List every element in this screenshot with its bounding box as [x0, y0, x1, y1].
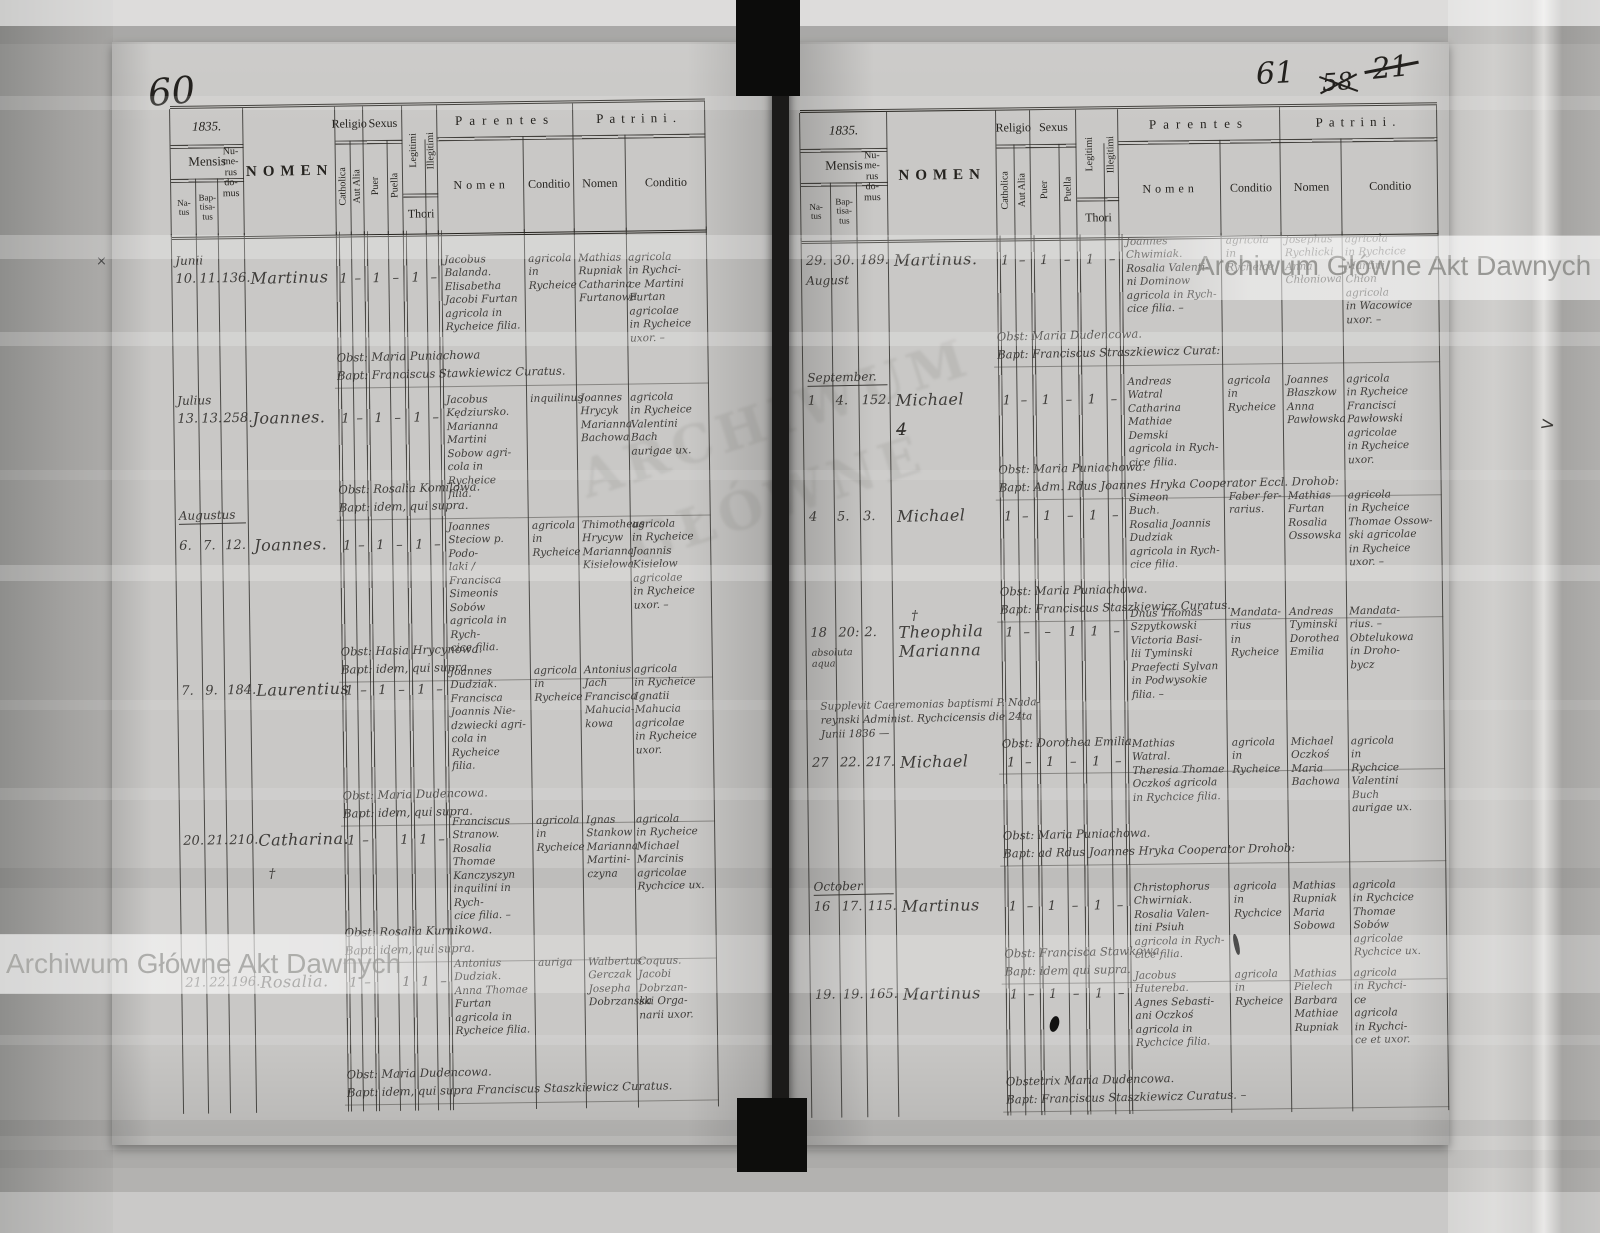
section-parentes: Parentes [437, 105, 573, 135]
record-right-1-flag-0: 1 [1001, 253, 1010, 268]
record-left-2-natus-day: 13. [177, 411, 199, 426]
col-natus: Na- tus [801, 185, 832, 239]
record-right-1-flag-4: 1 [1086, 252, 1095, 267]
record-left-6-parents-names: Antonius Dudziak. Anna Thomae Furtan agr… [454, 956, 536, 1038]
record-left-6-flag-3: 1 [402, 975, 411, 990]
section-patrini: Patrini. [1280, 107, 1438, 137]
record-left-3-month: Augustus [179, 507, 246, 525]
record-right-3-godparents-names: Mathias Furtan Rosalia Ossowska [1288, 489, 1346, 544]
record-right-6-baptisatus-day: 17. [842, 899, 866, 914]
table-header-right: 1835. Mensis Na- tus Bap- tisa- tus Nu- … [800, 102, 1439, 244]
record-right-2-flag-1: – [1021, 393, 1028, 408]
record-right-6-flag-1: – [1027, 899, 1034, 914]
record-right-2-parents-condition: agricola in Rycheice [1227, 374, 1283, 415]
record-right-5-godparents-condition: agricola in Rychcice Valentini Buch auri… [1351, 733, 1444, 816]
record-left-2-month: Julius [177, 392, 244, 408]
record-left-5-flag-5: – [438, 832, 445, 847]
record-left-3-flag-3: – [396, 538, 403, 553]
record-left-6-flag-5: – [440, 974, 447, 989]
record-right-1-baptisatus-day: 30. [834, 253, 858, 268]
record-right-7-natus-day: 19. [815, 987, 841, 1003]
record-right-1-flag-3: – [1064, 253, 1071, 268]
binding-clamp-top [736, 0, 800, 96]
record-right-4-godparents-names: Andreas Tyminski Dorothea Emilia [1289, 605, 1347, 660]
record-right-1-month: August [806, 272, 886, 288]
col-patrini-conditio: Conditio [625, 136, 707, 229]
record-right-4-dates-note: absoluta aqua [812, 646, 889, 670]
col-puer: Puer [1030, 144, 1060, 236]
record-left-4-baptisatus-day: 9. [205, 683, 225, 698]
record-left-1-flag-4: 1 [411, 270, 420, 285]
record-right-4-child-name: Theophila Marianna [899, 621, 1003, 661]
col-numerus-domus: Nu- me- rus do- mus [217, 112, 244, 234]
record-left-1-house-number: 136. [221, 271, 245, 287]
record-right-3-baptisatus-day: 5. [837, 509, 861, 524]
record-left-4-flag-3: – [398, 683, 405, 698]
record-right-1-natus-day: 29. [806, 253, 832, 269]
record-left-3-godparents-names: Thimotheus Hrycyw Marianna Kisielowa [581, 518, 630, 573]
record-left-4-flag-2: 1 [378, 683, 387, 698]
col-patrini-nomen: Nomen [573, 137, 626, 230]
record-left-4-house-number: 184. [227, 683, 251, 699]
record-right-6-child-name: Martinus [902, 895, 1006, 916]
record-right-7-godparents-condition: agricola in Rychci- ce agricola in Rychc… [1354, 965, 1447, 1048]
record-right-2-house-number: 152. [861, 393, 889, 409]
page-number-right: 61 [1255, 55, 1295, 92]
col-legitimi: Legitimi [1077, 113, 1105, 195]
record-left-4-godparents-condition: agricola in Rycheice Ignatii Mahucia agr… [634, 662, 713, 758]
record-right-3-child-name: Michael [897, 505, 1001, 526]
record-right-7-flag-1: – [1028, 987, 1035, 1002]
record-left-1-baptisatus-day: 11. [200, 271, 220, 286]
record-left-4-natus-day: 7. [181, 683, 203, 698]
col-thori: Thori [403, 195, 438, 231]
col-sexus: Sexus [363, 108, 402, 139]
record-right-5-flag-5: – [1115, 754, 1122, 769]
record-right-5-flag-0: 1 [1007, 755, 1016, 770]
record-right-3-flag-3: – [1067, 509, 1074, 524]
record-left-2-flag-0: 1 [342, 411, 351, 426]
record-left-4-flag-1: – [361, 683, 368, 698]
record-left-1-flag-0: 1 [340, 271, 349, 286]
record-left-1-godparents-names: Mathias Rupniak Catharina Furtanowa [578, 251, 627, 306]
col-numerus-domus: Nu- me- rus do- mus [856, 116, 888, 238]
record-left-1-child-name: Martinus [250, 267, 337, 288]
record-right-4-natus-day: 18 [810, 625, 836, 641]
col-baptisatus: Bap- tisa- tus [196, 180, 219, 234]
record-left-6-flag-0: 1 [350, 975, 359, 990]
record-right-7-flag-2: 1 [1048, 987, 1057, 1002]
record-right-7-flag-5: – [1118, 986, 1125, 1001]
record-left-1-flag-1: – [355, 271, 362, 286]
record-right-4-flag-1: – [1024, 625, 1031, 640]
record-right-7-godparents-names: Mathias Pielech Barbara Mathiae Rupniak [1293, 967, 1352, 1035]
scan-background-left [0, 0, 113, 1233]
record-right-5-baptisatus-day: 22. [840, 755, 864, 770]
col-parentes-conditio: Conditio [524, 137, 575, 230]
record-right-2-baptisatus-day: 4. [836, 393, 860, 408]
record-right-2-flag-3: – [1065, 393, 1072, 408]
record-right-5-flag-1: – [1025, 755, 1032, 770]
record-left-3-natus-day: 6. [179, 538, 201, 553]
record-left-2-godparents-names: Joannes Hrycyk Marianna Bachowa [580, 391, 629, 446]
record-left-1-parents-condition: agricola in Rycheice [528, 252, 575, 293]
record-right-4-godparents-condition: Mandata- rius. – Obtelukowa in Droho- by… [1349, 603, 1442, 672]
record-left-5-death-cross: † [269, 867, 276, 882]
record-right-5-godparents-names: Michael Oczkoś Maria Bachowa [1291, 735, 1349, 790]
record-left-4-flag-5: – [436, 682, 443, 697]
header-row-rule [1078, 197, 1119, 202]
record-right-3-godparents-condition: agricola in Rycheice Thomae Ossow- ski a… [1348, 487, 1441, 570]
record-right-4-flag-2: – [1044, 625, 1051, 640]
crossed-numeral-mark: 4̶ [896, 420, 907, 440]
record-left-3-flag-1: – [358, 538, 365, 553]
record-right-1-flag-5: – [1109, 252, 1116, 267]
record-left-1-midwife-baptizer-note: Obst: Maria Puniachowa Bapt: Franciscus … [337, 341, 707, 385]
scan-streak [0, 1192, 1600, 1233]
record-right-5-midwife-baptizer-note: Obst: Maria Puniachowa. Bapt: ad Rdus Jo… [1003, 818, 1443, 863]
record-right-6-month: October [813, 878, 893, 896]
record-left-1-flag-2: 1 [372, 271, 381, 286]
record-right-4-house-number: 2. [864, 625, 892, 641]
record-left-3-parents-condition: agricola in Rycheice [532, 519, 579, 560]
scan-background-right [1448, 0, 1600, 1233]
record-right-4-flag-5: – [1113, 624, 1120, 639]
record-left-5-flag-3: 1 [400, 833, 409, 848]
records-area-right: August29.30.189.Martinus.1–1–1–Joannes C… [802, 230, 1450, 1118]
record-left-3-baptisatus-day: 7. [203, 538, 223, 553]
record-left-3-parents-names: Joannes Steciow p. Podo- laki / Francisc… [448, 519, 531, 655]
binding-clamp-bottom [737, 1098, 807, 1172]
record-right-2-child-name: Michael [896, 389, 1000, 410]
record-left-4-flag-0: 1 [346, 683, 355, 698]
record-right-7-parents-names: Jacobus Hutereba. Agnes Sebasti- ani Ocz… [1134, 968, 1231, 1051]
col-thori: Thori [1078, 199, 1120, 236]
record-left-5-child-name: Catharina. [258, 829, 345, 850]
record-left-5-parents-names: Franciscus Stranow. Rosalia Thomae Kancz… [452, 814, 535, 923]
record-left-3-house-number: 12. [225, 538, 249, 554]
record-right-3-flag-2: 1 [1042, 509, 1051, 524]
record-left-6-flag-4: 1 [421, 974, 430, 989]
record-left-4-flag-4: 1 [417, 682, 426, 697]
record-right-7-flag-3: – [1073, 987, 1080, 1002]
record-right-6-natus-day: 16 [813, 899, 839, 915]
record-right-2-flag-4: 1 [1088, 392, 1097, 407]
scanned-register-spread: ARCHIWUM GŁÓWNE 1835. Mensis Na- tus Bap… [0, 0, 1600, 1233]
record-right-3-natus-day: 4 [809, 509, 835, 525]
record-left-2-baptisatus-day: 13. [202, 411, 222, 426]
record-right-5-house-number: 217. [866, 755, 894, 771]
section-patrini: Patrini. [573, 104, 706, 134]
record-right-1-godparents-condition: agricola in Rychcice Martini Chłon agric… [1345, 231, 1439, 327]
record-right-2-godparents-names: Joannes Błaszkow Anna Pawłowska [1286, 373, 1344, 428]
col-patrini-conditio: Conditio [1342, 139, 1439, 232]
record-right-4-flag-3: 1 [1068, 625, 1077, 640]
col-puer: Puer [364, 140, 389, 232]
record-left-2-flag-2: 1 [374, 411, 383, 426]
record-left-6-child-name: Rosalia. [260, 971, 347, 992]
record-left-2-child-name: Joannes. [252, 407, 339, 428]
record-right-5-flag-2: 1 [1045, 755, 1054, 770]
record-left-6-godparents-names: Walbertus Gerczak Josepha Dobrzanska [587, 955, 636, 1010]
record-left-3-flag-0: 1 [344, 538, 353, 553]
record-right-6-flag-4: 1 [1094, 898, 1103, 913]
record-left-6-flag-1: – [365, 975, 372, 990]
record-right-1-house-number: 189. [860, 253, 888, 269]
record-left-2-parents-condition: inquilinus [530, 392, 576, 406]
record-left-1-month: Junii [175, 252, 242, 268]
pencil-x-mark: × [96, 254, 107, 269]
page-number-right-crossed: 58 [1321, 67, 1353, 97]
record-left-1-parents-names: Jacobus Balanda. Elisabetha Jacobi Furta… [444, 252, 526, 334]
header-row-rule [403, 193, 438, 197]
record-left-6-midwife-baptizer-note: Obst: Maria Dudencowa. Bapt: idem, qui s… [347, 1058, 717, 1102]
page-number-left: 60 [146, 68, 197, 115]
col-nomen: NOMEN [243, 111, 337, 234]
record-left-2-flag-1: – [357, 411, 364, 426]
record-right-3-parents-names: Simeon Buch. Rosalia Joannis Dudziak agr… [1128, 490, 1225, 573]
record-right-2-flag-5: – [1111, 392, 1118, 407]
record-right-4-parents-condition: Mandata- rius in Rycheice [1230, 606, 1286, 661]
col-parentes-conditio: Conditio [1221, 141, 1281, 234]
record-right-3-flag-4: 1 [1089, 508, 1098, 523]
column-rule [887, 237, 899, 1117]
record-right-6-flag-2: 1 [1047, 899, 1056, 914]
record-left-3-flag-5: – [434, 537, 441, 552]
col-patrini-nomen: Nomen [1280, 140, 1343, 233]
record-right-2-flag-0: 1 [1003, 393, 1012, 408]
record-right-4-flag-0: 1 [1006, 625, 1015, 640]
record-left-5-flag-1: – [363, 833, 370, 848]
record-left-5-flag-4: 1 [419, 832, 428, 847]
record-right-5-child-name: Michael [900, 751, 1004, 772]
record-left-3-flag-2: 1 [376, 538, 385, 553]
record-left-5-godparents-condition: agricola in Rycheice Michael Marcinis ag… [636, 812, 715, 894]
record-left-5-godparents-names: Ignas Stankow Marianna Martini- czyna [585, 813, 635, 881]
record-left-2-midwife-baptizer-note: Obst: Rosalia Komilowa. Bapt: idem, qui … [338, 473, 708, 517]
record-left-5-natus-day: 20. [183, 833, 205, 848]
record-left-6-natus-day: 21. [185, 975, 207, 990]
record-right-6-godparents-names: Mathias Rupniak Maria Sobowa [1292, 879, 1350, 934]
record-left-1-flag-5: – [430, 270, 437, 285]
section-parentes: Parentes [1118, 109, 1280, 139]
records-area-left: Junii10.11.136.Martinus1–1–1–Jacobus Bal… [172, 227, 719, 1114]
record-left-4-godparents-names: Antonius Jach Francisca Mahucia- kowa [583, 663, 633, 731]
record-left-4-child-name: Laurentius [256, 679, 343, 700]
record-right-7-house-number: 165. [869, 987, 897, 1003]
col-religio: Religio [996, 112, 1030, 142]
record-left-6-parents-condition: auriga [538, 956, 584, 970]
record-right-5-natus-day: 27 [812, 755, 838, 771]
record-right-1-flag-1: – [1019, 253, 1026, 268]
record-left-2-godparents-condition: agricola in Rycheice Valentini Bach auri… [630, 390, 709, 459]
record-left-2-house-number: 258. [223, 411, 247, 427]
record-left-3-godparents-condition: agricola in Rycheice Joannis Kisielow ag… [632, 517, 711, 613]
record-right-3-flag-5: – [1112, 508, 1119, 523]
record-left-2-flag-5: – [432, 410, 439, 425]
record-left-3-child-name: Joannes. [254, 534, 341, 555]
record-left-6-godparents-condition: Coquus. Jacobi Dobrzan- ski Orga- narii … [638, 954, 717, 1023]
record-right-4-death-cross: † [911, 609, 918, 624]
record-right-6-house-number: 115. [868, 899, 896, 915]
record-left-1-natus-day: 10. [176, 271, 198, 286]
record-left-2-flag-4: 1 [413, 410, 422, 425]
record-right-6-flag-5: – [1117, 898, 1124, 913]
register-table-right-page: 1835. Mensis Na- tus Bap- tisa- tus Nu- … [800, 102, 1449, 1120]
record-right-1-parents-condition: agricola in Rycheice [1225, 234, 1281, 275]
record-right-1-parents-names: Joannes Chwimiak. Rosalia Valenti- ni Do… [1125, 234, 1222, 317]
col-legitimi: Legitimi [402, 109, 426, 191]
col-religio: Religio [335, 108, 364, 138]
record-right-3-flag-1: – [1022, 509, 1029, 524]
record-right-4-baptisatus-day: 20: [839, 625, 863, 640]
record-right-4-parents-names: Dnus Thomas Szpytkowski Victoria Basi- l… [1130, 606, 1227, 702]
scan-streak [0, 0, 1600, 26]
register-table-left-page: 1835. Mensis Na- tus Bap- tisa- tus Nu- … [170, 99, 719, 1116]
col-parentes-nomen: Nomen [1118, 142, 1222, 235]
page-number-right-crossed-2: 21 [1370, 48, 1410, 86]
record-left-4-parents-condition: agricola in Rycheice [534, 664, 581, 705]
record-right-1-midwife-baptizer-note: Obst: Maria Dudencowa. Bapt: Franciscus … [997, 319, 1437, 364]
record-right-3-parents-condition: Faber fer- rarius. [1228, 490, 1283, 518]
record-right-7-flag-4: 1 [1095, 986, 1104, 1001]
record-right-1-child-name: Martinus. [894, 249, 998, 270]
record-left-2-flag-3: – [394, 411, 401, 426]
record-right-3-house-number: 3. [863, 509, 891, 525]
col-parentes-nomen: Nomen [437, 138, 524, 231]
record-left-4-parents-names: Joannes Dudziak. Francisca Joannis Nie- … [450, 664, 533, 773]
record-right-5-parents-condition: agricola in Rycheice [1231, 736, 1287, 777]
col-baptisatus: Bap- tisa- tus [831, 184, 858, 238]
record-right-7-baptisatus-day: 19. [843, 987, 867, 1002]
record-right-1-flag-2: 1 [1039, 253, 1048, 268]
record-left-1-flag-3: – [392, 271, 399, 286]
record-right-2-parents-names: Andreas Watral Catharina Mathiae Demski … [1127, 374, 1224, 470]
record-left-1-godparents-condition: agricola in Rychci- ce Martini Furtan ag… [628, 250, 707, 346]
record-right-2-flag-2: 1 [1041, 393, 1050, 408]
record-right-2-natus-day: 1 [807, 393, 833, 409]
record-left-5-parents-condition: agricola in Rycheice [536, 814, 583, 855]
record-right-7-flag-0: 1 [1010, 987, 1019, 1002]
table-header-left: 1835. Mensis Na- tus Bap- tisa- tus Nu- … [170, 99, 707, 240]
record-left-3-flag-4: 1 [415, 537, 424, 552]
record-right-6-flag-0: 1 [1009, 899, 1018, 914]
record-left-6-baptisatus-day: 22. [209, 975, 229, 990]
record-right-3-flag-0: 1 [1004, 509, 1013, 524]
book-binding-strip [772, 55, 789, 1117]
record-right-5-parents-names: Mathias Watral. Theresia Thomae Oczkoś a… [1131, 736, 1228, 805]
record-left-5-house-number: 210. [229, 833, 253, 849]
record-right-6-flag-3: – [1071, 899, 1078, 914]
record-right-4-flag-4: 1 [1090, 624, 1099, 639]
record-right-5-flag-4: 1 [1092, 754, 1101, 769]
record-right-7-child-name: Martinus [903, 983, 1007, 1004]
col-nomen: NOMEN [887, 115, 998, 238]
record-right-2-month: September. [807, 369, 887, 387]
record-left-5-midwife-baptizer-note: Obst: Rosalia Kurnikowa. Bapt: idem, qui… [345, 916, 715, 960]
record-right-5-flag-3: – [1070, 755, 1077, 770]
record-right-1-godparents-names: Josephus Rychlicki Anna Chłoniowa [1284, 233, 1342, 288]
record-right-7-parents-condition: agricola in Rycheice [1234, 968, 1290, 1009]
col-sexus: Sexus [1030, 112, 1077, 143]
record-left-5-flag-0: 1 [348, 833, 357, 848]
col-natus: Na- tus [171, 181, 197, 235]
record-right-7-midwife-baptizer-note: Obstetrix Maria Dudencowa. Bapt: Francis… [1006, 1064, 1446, 1109]
record-left-6-house-number: 196. [231, 975, 255, 991]
record-left-5-baptisatus-day: 21. [207, 833, 227, 848]
record-right-6-parents-condition: agricola in Rychcice [1233, 880, 1289, 921]
